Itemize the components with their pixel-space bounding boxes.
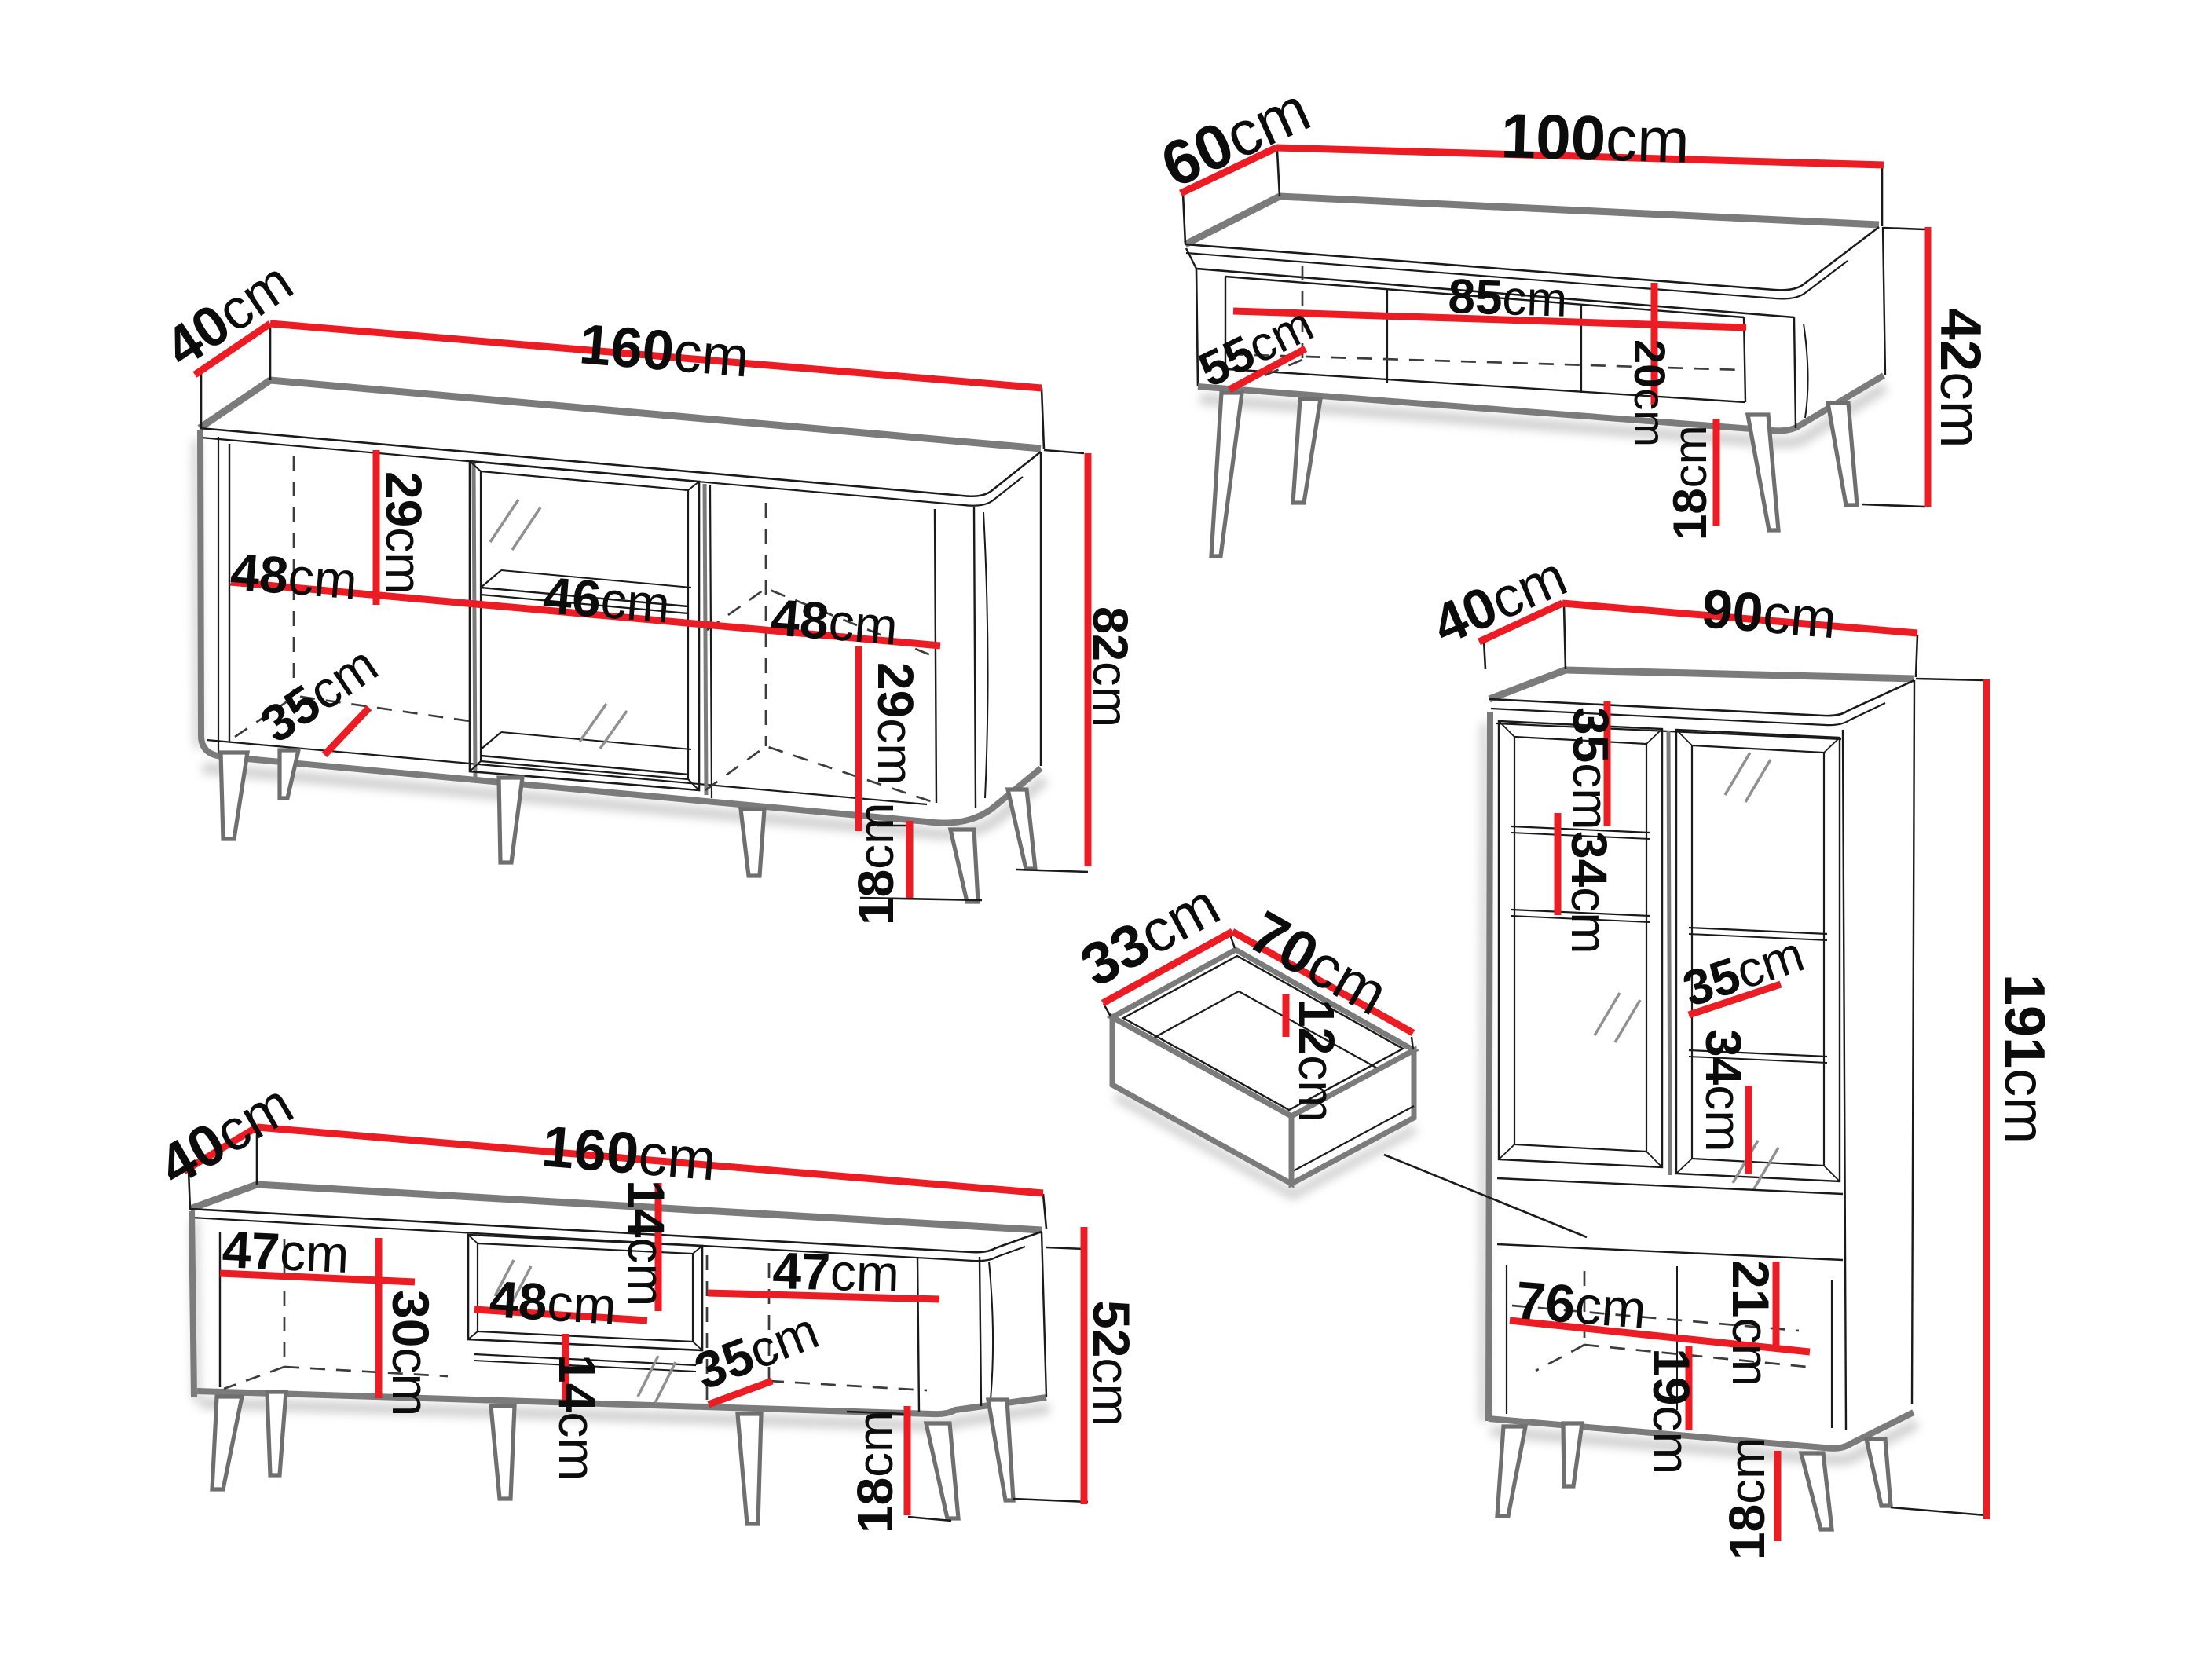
svg-text:30cm: 30cm xyxy=(382,1290,440,1416)
svg-text:47cm: 47cm xyxy=(221,1220,350,1284)
svg-text:90cm: 90cm xyxy=(1700,577,1839,650)
svg-text:52cm: 52cm xyxy=(1082,1300,1141,1426)
svg-text:18cm: 18cm xyxy=(1664,425,1716,540)
svg-text:18cm: 18cm xyxy=(847,1411,903,1534)
svg-text:34cm: 34cm xyxy=(1695,1029,1752,1152)
svg-text:21cm: 21cm xyxy=(1722,1260,1780,1386)
svg-text:48cm: 48cm xyxy=(488,1269,618,1335)
svg-text:14cm: 14cm xyxy=(617,1180,676,1306)
svg-text:18cm: 18cm xyxy=(1719,1437,1775,1561)
svg-text:100cm: 100cm xyxy=(1500,101,1691,176)
svg-text:19cm: 19cm xyxy=(1643,1348,1701,1474)
svg-text:14cm: 14cm xyxy=(548,1354,606,1481)
svg-text:12cm: 12cm xyxy=(1288,999,1345,1122)
svg-text:29cm: 29cm xyxy=(375,471,432,595)
svg-text:48cm: 48cm xyxy=(769,588,900,655)
svg-text:48cm: 48cm xyxy=(229,542,360,610)
svg-text:46cm: 46cm xyxy=(541,566,672,633)
svg-text:34cm: 34cm xyxy=(1561,831,1617,954)
svg-text:18cm: 18cm xyxy=(848,803,904,926)
svg-text:42cm: 42cm xyxy=(1928,308,1992,449)
svg-text:29cm: 29cm xyxy=(867,662,924,786)
svg-text:85cm: 85cm xyxy=(1448,269,1569,328)
svg-text:35cm: 35cm xyxy=(1562,707,1619,830)
svg-text:47cm: 47cm xyxy=(772,1241,900,1302)
svg-text:191cm: 191cm xyxy=(1993,974,2056,1144)
svg-text:76cm: 76cm xyxy=(1514,1270,1649,1340)
svg-text:82cm: 82cm xyxy=(1082,606,1137,727)
